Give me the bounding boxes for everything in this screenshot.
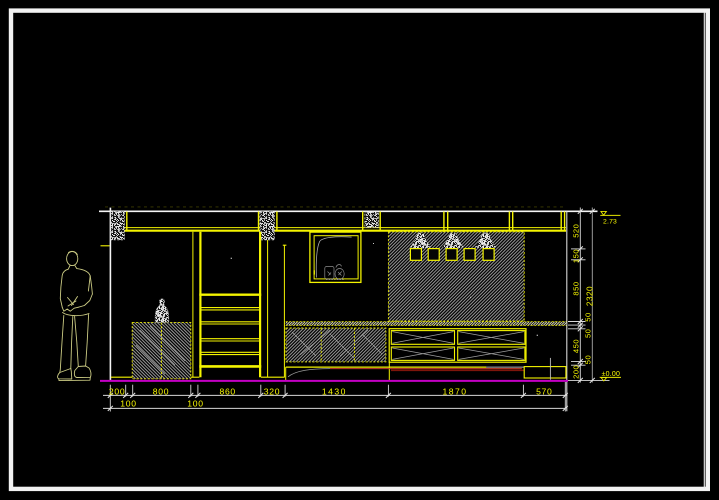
svg-text:200: 200: [109, 386, 125, 396]
svg-text:50: 50: [583, 329, 592, 338]
svg-text:320: 320: [264, 386, 280, 396]
svg-text:450: 450: [572, 339, 581, 353]
svg-text:100: 100: [120, 398, 136, 408]
svg-text:860: 860: [219, 386, 235, 396]
svg-text:2320: 2320: [586, 286, 595, 306]
svg-text:1430: 1430: [322, 386, 347, 396]
svg-text:850: 850: [572, 281, 581, 295]
svg-text:150: 150: [572, 249, 581, 263]
svg-text:50: 50: [583, 312, 592, 321]
svg-text:2.73: 2.73: [603, 218, 617, 225]
svg-text:100: 100: [187, 398, 203, 408]
svg-text:570: 570: [536, 386, 552, 396]
svg-text:±0.00: ±0.00: [602, 371, 620, 378]
svg-text:520: 520: [572, 224, 581, 238]
svg-text:1870: 1870: [442, 386, 467, 396]
svg-text:800: 800: [153, 386, 169, 396]
svg-text:50: 50: [583, 355, 592, 364]
svg-text:200: 200: [572, 365, 581, 379]
